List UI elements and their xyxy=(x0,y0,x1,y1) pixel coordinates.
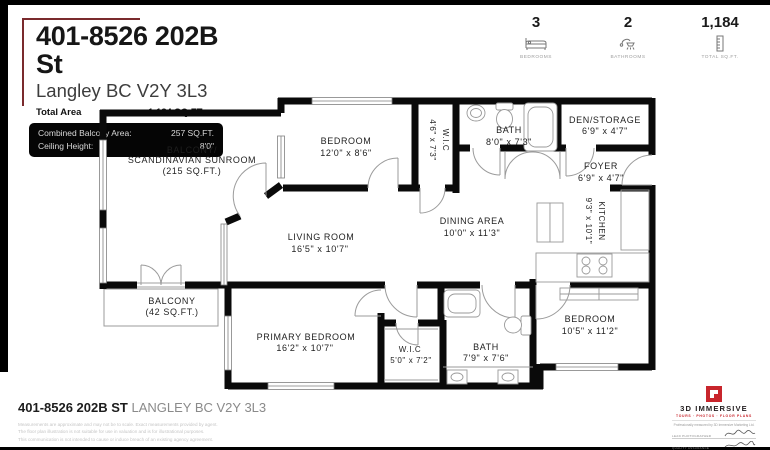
label-bath-bottom-dims: 7'9" x 7'6" xyxy=(463,353,509,363)
label-kitchen-dims: 9'3" x 10'1" xyxy=(584,198,593,245)
label-bedroom-bottom: BEDROOM xyxy=(565,314,616,324)
floorplan-page: 401-8526 202B St Langley BC V2Y 3L3 Tota… xyxy=(0,0,770,450)
label-primary-dims: 16'2" x 10'7" xyxy=(276,343,333,353)
label-wic-top-dims: 4'6" x 7'3" xyxy=(428,119,437,161)
signature-row: Lead Photographer xyxy=(672,429,756,440)
signature-label: Lead Photographer xyxy=(672,434,711,438)
label-wic-bottom-dims: 5'0" x 7'2" xyxy=(390,356,432,365)
brand-logo-icon xyxy=(672,386,756,402)
disclaimer-line: This communication is not intended to ca… xyxy=(18,436,266,443)
signature-row: Quality Assurance xyxy=(672,441,756,450)
label-bath-top-dims: 8'0" x 7'3" xyxy=(486,137,532,147)
label-kitchen: KITCHEN xyxy=(597,201,606,240)
signature-icon xyxy=(724,429,756,438)
label-sunroom-2: SCANDINAVIAN SUNROOM xyxy=(128,155,256,165)
label-dining-dims: 10'0" x 11'3" xyxy=(444,228,501,238)
label-bedroom-bottom-dims: 10'5" x 11'2" xyxy=(562,326,619,336)
fridge-icon xyxy=(537,203,550,242)
walls xyxy=(100,98,655,389)
disclaimer: Measurements are approximate and may not… xyxy=(18,421,266,443)
label-den-dims: 6'9" x 4'7" xyxy=(582,126,628,136)
toilet-icon xyxy=(496,103,513,110)
stove-icon xyxy=(577,254,612,277)
disclaimer-line: The floor plan illustration is not suita… xyxy=(18,428,266,435)
brand-name: 3D IMMERSIVE xyxy=(672,404,756,413)
label-bedroom-top: BEDROOM xyxy=(321,136,372,146)
signature-icon xyxy=(724,441,756,450)
floor-plan: BALCONY/ SCANDINAVIAN SUNROOM (215 SQ.FT… xyxy=(0,0,770,450)
brand-measured-by: Professionally measured by 3D Immersive … xyxy=(672,420,756,427)
wic-shelves xyxy=(384,329,438,380)
label-sunroom: BALCONY/ xyxy=(167,145,217,155)
toilet-icon xyxy=(521,316,531,335)
footer-address-rest: LANGLEY BC V2Y 3L3 xyxy=(128,400,266,415)
label-bath-bottom: BATH xyxy=(473,342,499,352)
brand-tagline: TOURS · PHOTOS · FLOOR PLANS xyxy=(672,414,756,418)
footer-address-bold: 401-8526 202B ST xyxy=(18,400,128,415)
label-wic-top: W.I.C xyxy=(441,129,450,152)
footer-address: 401-8526 202B ST LANGLEY BC V2Y 3L3 xyxy=(18,400,266,415)
label-foyer-dims: 6'9" x 4'7" xyxy=(578,173,624,183)
label-foyer: FOYER xyxy=(584,161,618,171)
label-dining: DINING AREA xyxy=(440,216,505,226)
label-living: LIVING ROOM xyxy=(288,232,355,242)
brand-block: 3D IMMERSIVE TOURS · PHOTOS · FLOOR PLAN… xyxy=(672,386,756,450)
label-bath-top: BATH xyxy=(496,125,522,135)
footer: 401-8526 202B ST LANGLEY BC V2Y 3L3 Meas… xyxy=(18,400,266,443)
label-balcony-area: (42 SQ.FT.) xyxy=(145,307,198,317)
label-den: DEN/STORAGE xyxy=(569,115,641,125)
label-balcony: BALCONY xyxy=(148,296,195,306)
kitchen-counter xyxy=(621,190,649,250)
label-wic-bottom: W.I.C xyxy=(399,345,422,354)
label-living-dims: 16'5" x 10'7" xyxy=(291,244,348,254)
label-bedroom-top-dims: 12'0" x 8'6" xyxy=(320,148,372,158)
label-primary: PRIMARY BEDROOM xyxy=(257,332,356,342)
disclaimer-line: Measurements are approximate and may not… xyxy=(18,421,266,428)
signature-label: Quality Assurance xyxy=(672,446,709,450)
label-sunroom-area: (215 SQ.FT.) xyxy=(163,166,222,176)
